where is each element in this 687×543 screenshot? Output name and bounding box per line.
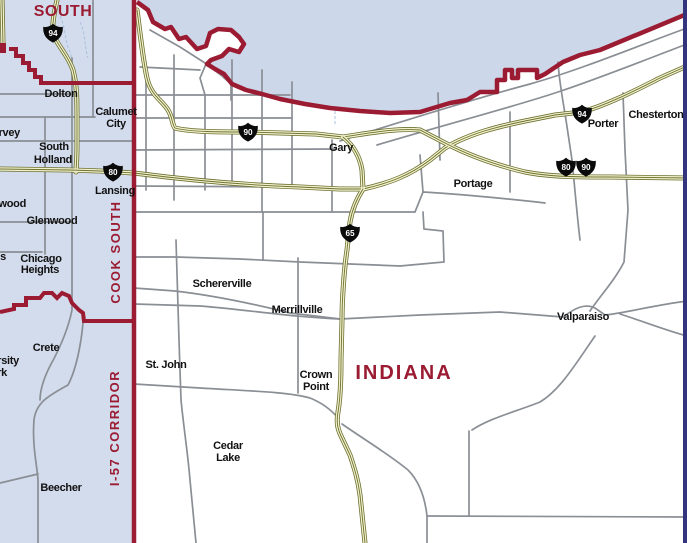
city-label: University bbox=[0, 355, 20, 367]
city-label: Crown bbox=[300, 369, 333, 381]
region-label: INDIANA bbox=[355, 362, 452, 384]
city-label: Lansing bbox=[95, 185, 135, 197]
city-label: Dolton bbox=[44, 88, 78, 100]
city-label: Porter bbox=[588, 118, 620, 130]
region-label: I-57 CORRIDOR bbox=[107, 370, 122, 486]
city-label: Crete bbox=[33, 342, 60, 354]
city-label: City bbox=[106, 118, 127, 130]
city-label: South bbox=[39, 141, 69, 153]
city-label: Glenwood bbox=[27, 215, 78, 227]
shield-number: 65 bbox=[345, 229, 355, 238]
city-label: Homewood bbox=[0, 198, 26, 210]
regional-corridor-map: 94809065948090SOUTHINDIANACOOK SOUTHI-57… bbox=[0, 0, 687, 543]
city-label: Heights bbox=[21, 264, 59, 276]
minor-road bbox=[134, 149, 336, 150]
city-label: Beecher bbox=[40, 482, 82, 494]
city-label: Gary bbox=[329, 142, 354, 154]
city-label: Cedar bbox=[213, 440, 244, 452]
map-canvas: 94809065948090SOUTHINDIANACOOK SOUTHI-57… bbox=[0, 0, 687, 543]
city-label: Holland bbox=[34, 154, 72, 166]
boundary-fragment bbox=[0, 43, 6, 53]
map-edge-strip bbox=[683, 0, 687, 543]
city-label: Schererville bbox=[193, 278, 252, 290]
shield-number: 94 bbox=[48, 29, 58, 38]
city-label: Harvey bbox=[0, 127, 21, 139]
shield-number: 94 bbox=[577, 110, 587, 119]
region-label: SOUTH bbox=[34, 3, 93, 20]
city-label: Park bbox=[0, 367, 8, 379]
shield-number: 90 bbox=[581, 163, 591, 172]
shield-number: 90 bbox=[243, 128, 253, 137]
city-label: Point bbox=[303, 381, 330, 393]
city-label: St. John bbox=[146, 359, 188, 371]
city-label: Calumet bbox=[95, 106, 137, 118]
minor-road bbox=[427, 516, 687, 517]
city-label: Chesterton bbox=[628, 109, 684, 121]
city-label: Olympia Fields bbox=[0, 251, 6, 263]
city-label: Valparaiso bbox=[557, 311, 610, 323]
city-label: Lake bbox=[216, 452, 240, 464]
shield-number: 80 bbox=[561, 163, 571, 172]
region-label: COOK SOUTH bbox=[108, 200, 123, 303]
city-label: Portage bbox=[454, 178, 493, 190]
city-label: Merrillville bbox=[272, 304, 323, 316]
shield-number: 80 bbox=[108, 168, 118, 177]
